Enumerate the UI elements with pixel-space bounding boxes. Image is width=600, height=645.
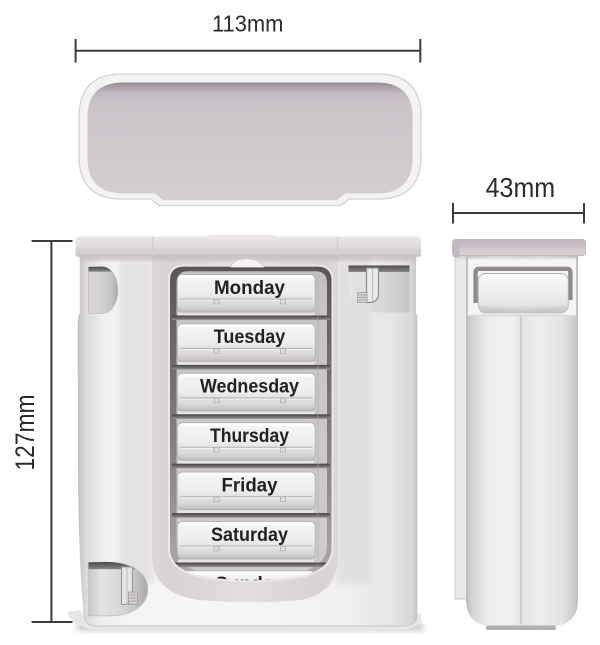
svg-text:Monday: Monday (214, 277, 285, 299)
svg-text:43mm: 43mm (486, 172, 556, 203)
svg-text:113mm: 113mm (212, 11, 284, 37)
svg-text:Tuesday: Tuesday (214, 326, 286, 348)
svg-text:Saturday: Saturday (211, 524, 288, 546)
svg-text:127mm: 127mm (10, 395, 40, 471)
svg-text:Wednesday: Wednesday (200, 376, 299, 398)
svg-text:Thursday: Thursday (210, 425, 289, 447)
svg-text:Friday: Friday (222, 474, 278, 496)
